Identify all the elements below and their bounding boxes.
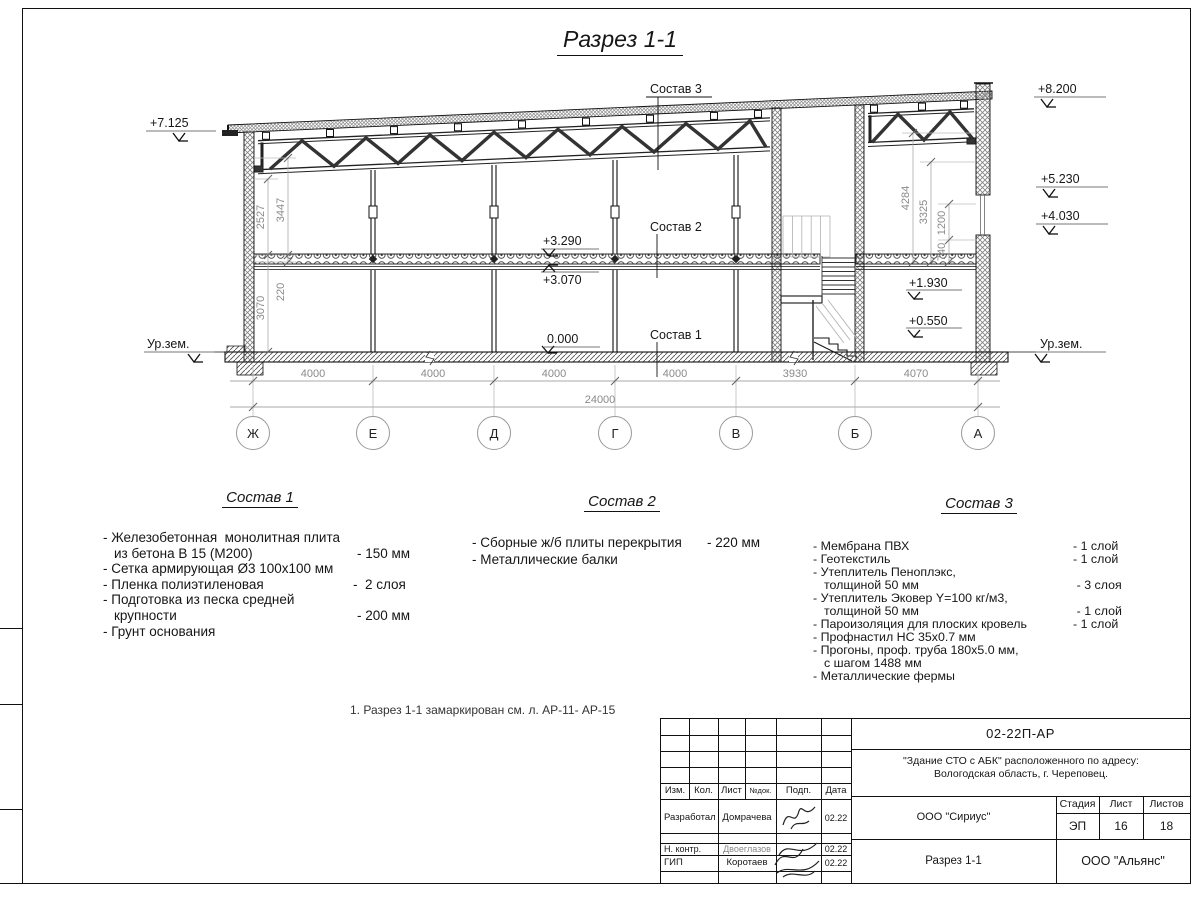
spec-item-value: - 1 слой [1073,618,1131,631]
section-drawing: Состав 3 Состав 2 Состав 1 +7.125 +8.200 [0,0,1200,475]
tb-sheet-value: 16 [1099,813,1143,839]
spec-item-value [1073,670,1131,683]
spec-item-text: - Сетка армирующая Ø3 100х100 мм [103,561,353,577]
total-dimension-label: 24000 [585,394,616,406]
columns [369,155,740,352]
dimension-label: 740 [936,243,948,261]
spec3-heading: Состав 3 [820,495,1138,514]
staircase [781,216,856,361]
frame-box-divider [0,704,22,705]
ground-level-label: Ур.зем. [1040,337,1082,351]
spec-item-value [353,561,423,577]
spec3-list: - Мембрана ПВХ- 1 слой- Геотекстиль- 1 с… [813,540,1133,683]
axis-label: А [974,426,983,441]
tb-stage-label: Стадия [1056,796,1099,813]
axis-label: Б [851,426,860,441]
tb-sheets-value: 18 [1143,813,1190,839]
spec-item-value [353,592,423,608]
axis-label: В [732,426,741,441]
spec-item-value [1073,644,1131,657]
spec-item: из бетона В 15 (М200)- 150 мм [103,546,425,562]
spec-item-value: - 1 слой [1073,553,1131,566]
dimension-label: 3325 [918,200,930,224]
spec-item-text: - Грунт основания [103,624,353,640]
tb-doc-number: 02-22П-АР [851,719,1190,749]
spec-item: - Грунт основания [103,624,425,640]
dimension-label: 2527 [255,205,267,229]
spec-item-value: - 200 мм [357,608,425,624]
axis-label: Ж [247,426,259,441]
tb-date-gip: 02.22 [821,855,851,871]
tb-name-developer: Домрачева [718,803,776,833]
ground-level-label: Ур.зем. [147,337,189,351]
spec-item-value [1073,631,1131,644]
title-block: Изм. Кол. Лист №док. Подп. Дата Разработ… [660,718,1191,884]
dimension-label: 3070 [255,296,267,320]
vertical-dimensions-left: 2527 3447 220 3070 [254,154,296,356]
frame-box-divider [0,809,22,810]
tb-name-ncontrol: Двоеглазов [718,843,776,855]
spec-item: - Подготовка из песка средней [103,592,425,608]
tb-stage-value: ЭП [1056,813,1099,839]
elevation-label: +1.930 [909,276,948,290]
elevation-label: +5.230 [1041,172,1080,186]
elevation-label: +7.125 [150,116,189,130]
tb-col-list: Лист [718,783,745,799]
spec-item-value [1077,657,1133,670]
spec-item-value [353,530,423,546]
tb-col-kol: Кол. [689,783,718,799]
tb-role-developer: Разработал [662,803,719,833]
spec-item: - Железобетонная монолитная плита [103,530,425,546]
spec2-heading: Состав 2 [472,493,772,512]
elevation-label: 0.000 [547,332,578,346]
tb-date-ncontrol: 02.22 [821,843,851,855]
tb-col-ndok: №док. [745,783,776,799]
spec-item-value: - 2 слоя [353,577,423,593]
spec-item-value: - 220 мм [707,534,772,551]
dimension-label: 4000 [421,368,445,380]
spec-item: - Металлические балки [472,551,774,568]
dimension-label: 3447 [275,198,287,222]
spec-item-value: - 3 слоя [1077,579,1133,592]
tb-org2: ООО "Альянс" [1056,839,1190,883]
vertical-dimensions-right: 4284 3325 1200 740 [900,129,976,266]
spec-item-value: - 150 мм [357,546,425,562]
spec-item-value [353,624,423,640]
spec1-list: - Железобетонная монолитная плитаиз бето… [103,530,425,639]
spec-item: крупности- 200 мм [103,608,425,624]
dimension-label: 4284 [900,186,912,210]
dimension-label: 4000 [663,368,687,380]
tb-col-izm: Изм. [661,783,689,799]
signature [779,801,819,833]
spec-item-text: из бетона В 15 (М200) [103,546,357,562]
drawing-note: 1. Разрез 1-1 замаркирован см. л. АР-11-… [350,703,615,717]
spec-item-text: - Металлические балки [472,551,707,568]
dimension-label: 3930 [783,368,807,380]
spec-item-text: крупности [103,608,357,624]
spec1-heading: Состав 1 [100,489,420,508]
tb-name-gip: Коротаев [718,855,776,871]
axis-label: Е [369,426,378,441]
floor-slab [254,254,976,270]
spec2-list: - Сборные ж/б плиты перекрытия- 220 мм- … [472,534,774,568]
spec-item-value [707,551,772,568]
dimension-label: 1200 [936,211,948,235]
spec-item-text: - Металлические фермы [813,670,1073,683]
spec-item: - Сетка армирующая Ø3 100х100 мм [103,561,425,577]
dimension-label: 4070 [904,368,928,380]
tb-org1: ООО "Сириус" [851,796,1056,839]
tb-date-developer: 02.22 [821,803,851,833]
spec-item-text: - Подготовка из песка средней [103,592,353,608]
composition-label: Состав 2 [650,220,702,234]
elevation-label: +3.070 [543,273,582,287]
spec-item: - Металлические фермы [813,670,1133,683]
tb-col-podp: Подп. [776,783,821,799]
spec-item: - Пленка полиэтиленовая- 2 слоя [103,577,425,593]
dimension-label: 220 [275,283,287,301]
bottom-dimensions: 4000 4000 4000 4000 3930 4070 24000 [230,365,1000,416]
signature [773,839,821,881]
tb-project-line2: Вологодская область, г. Череповец. [856,768,1186,781]
spec-item-text: - Пленка полиэтиленовая [103,577,353,593]
tb-sheets-label: Листов [1143,796,1190,813]
tb-col-data: Дата [821,783,851,799]
axis-bubbles: Ж Е Д Г В Б А [237,417,995,450]
axis-label: Г [611,426,618,441]
dimension-label: 4000 [542,368,566,380]
frame-attachment-boxes [0,628,23,884]
composition-label: Состав 1 [650,328,702,342]
spec-item: - Сборные ж/б плиты перекрытия- 220 мм [472,534,774,551]
elevation-label: +4.030 [1041,209,1080,223]
elevation-label: +0.550 [909,314,948,328]
tb-role-gip: ГИП [662,855,719,871]
spec-item-text: - Сборные ж/б плиты перекрытия [472,534,707,551]
tb-drawing-name: Разрез 1-1 [851,839,1056,883]
tb-project-line1: "Здание СТО с АБК" расположенного по адр… [856,755,1186,768]
axis-label: Д [490,426,499,441]
dimension-label: 4000 [301,368,325,380]
spec-item-text: - Железобетонная монолитная плита [103,530,353,546]
elevation-label: +8.200 [1038,82,1077,96]
composition-label: Состав 3 [650,82,702,96]
elevation-label: +3.290 [543,234,582,248]
tb-role-ncontrol: Н. контр. [662,843,719,855]
tb-sheet-label: Лист [1099,796,1143,813]
